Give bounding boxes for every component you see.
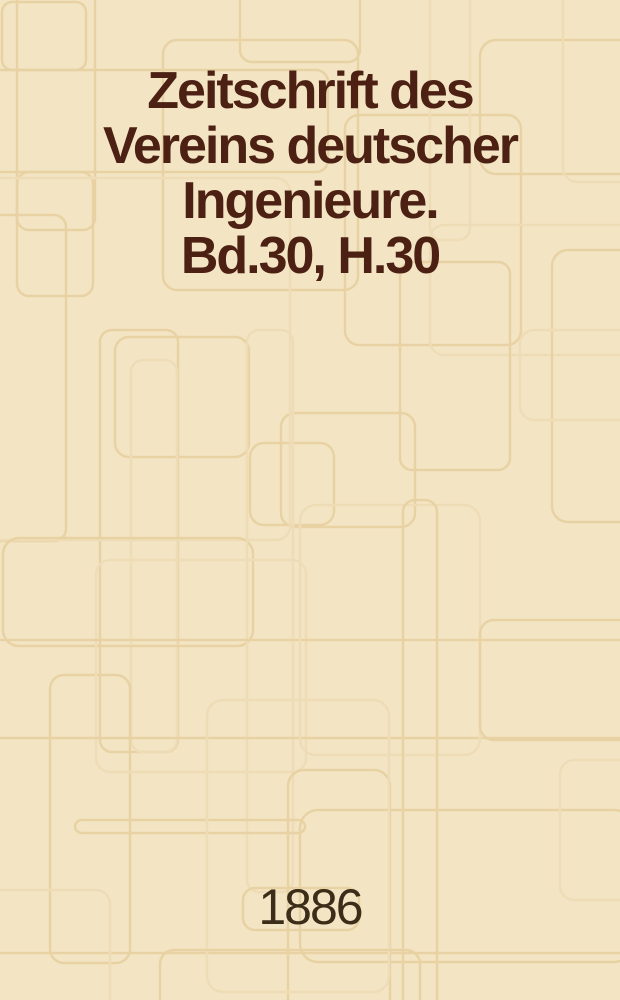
title-line-3: Ingenieure. [0,174,620,229]
title-line-1: Zeitschrift des [0,64,620,119]
title-line-4: Bd.30, H.30 [0,229,620,284]
title-line-2: Vereins deutscher [0,119,620,174]
journal-cover: Zeitschrift des Vereins deutscher Ingeni… [0,0,620,1000]
cover-title: Zeitschrift des Vereins deutscher Ingeni… [0,64,620,284]
cover-year: 1886 [0,882,620,932]
